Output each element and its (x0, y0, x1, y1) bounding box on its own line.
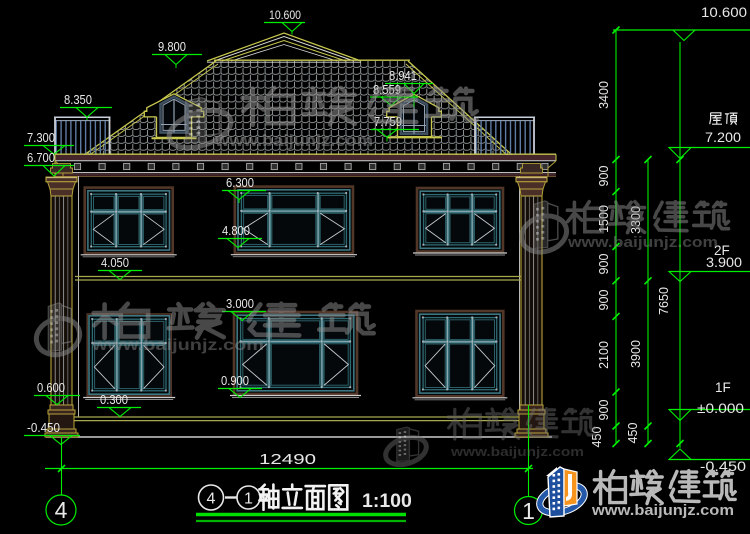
svg-text:1: 1 (244, 491, 253, 508)
svg-text:±0.000: ±0.000 (697, 401, 744, 416)
svg-text:6.700: 6.700 (27, 150, 55, 165)
svg-text:900: 900 (597, 290, 611, 311)
svg-text:www.baijunjz.com: www.baijunjz.com (450, 444, 584, 459)
svg-text:900: 900 (597, 166, 611, 187)
svg-text:1F: 1F (715, 380, 731, 395)
svg-text:www.baijunjz.com: www.baijunjz.com (91, 337, 264, 354)
svg-text:8.941: 8.941 (389, 69, 417, 83)
svg-text:6.300: 6.300 (226, 175, 254, 190)
svg-text:1: 1 (522, 498, 535, 524)
svg-text:900: 900 (597, 400, 611, 421)
svg-text:0.300: 0.300 (100, 392, 128, 407)
svg-text:7.300: 7.300 (27, 130, 55, 145)
svg-text:8.350: 8.350 (64, 92, 92, 107)
svg-text:1:100: 1:100 (362, 490, 412, 512)
svg-text:www.baijunjz.com: www.baijunjz.com (567, 235, 718, 251)
svg-text:-0.450: -0.450 (700, 459, 746, 474)
svg-text:www.baijunjz.com: www.baijunjz.com (214, 131, 373, 150)
svg-text:3900: 3900 (629, 340, 643, 368)
svg-text:12490: 12490 (259, 451, 316, 468)
svg-text:3.000: 3.000 (226, 296, 254, 311)
svg-text:www.baijunjz.com: www.baijunjz.com (591, 502, 734, 519)
svg-text:10.600: 10.600 (701, 5, 747, 20)
svg-text:450: 450 (626, 423, 640, 444)
svg-text:4.050: 4.050 (101, 255, 129, 270)
svg-text:4: 4 (55, 497, 68, 523)
svg-text:4.800: 4.800 (222, 223, 250, 238)
svg-text:9.800: 9.800 (158, 39, 186, 54)
svg-text:900: 900 (597, 254, 611, 275)
svg-text:2100: 2100 (597, 341, 611, 369)
svg-text:7.200: 7.200 (705, 130, 741, 145)
svg-text:0.600: 0.600 (37, 380, 65, 395)
svg-text:4: 4 (207, 491, 216, 508)
svg-text:3400: 3400 (597, 81, 611, 109)
svg-text:0.900: 0.900 (221, 373, 249, 388)
svg-text:7650: 7650 (657, 287, 671, 315)
svg-text:-0.450: -0.450 (27, 420, 60, 435)
svg-text:10.600: 10.600 (269, 8, 301, 22)
